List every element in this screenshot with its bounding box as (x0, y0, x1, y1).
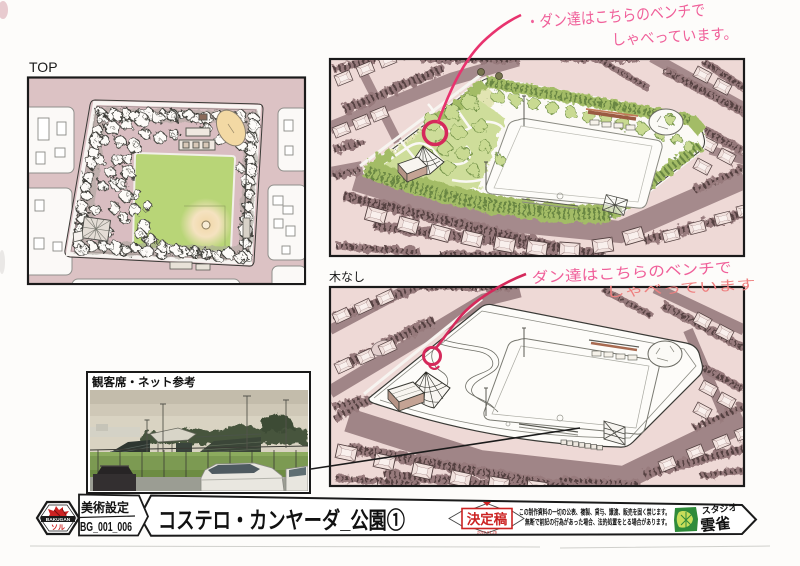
svg-text:木なし: 木なし (329, 270, 365, 284)
svg-text:雲雀: 雲雀 (700, 514, 732, 535)
svg-text:TOP: TOP (29, 59, 58, 75)
svg-text:2010.01.26: 2010.01.26 (477, 530, 498, 535)
svg-text:美術設定: 美術設定 (81, 500, 129, 515)
svg-text:観客席・ネット参考: 観客席・ネット参考 (92, 375, 196, 389)
svg-text:決定稿: 決定稿 (467, 511, 508, 527)
svg-text:ソル: ソル (51, 524, 65, 532)
svg-text:BAKUGAN: BAKUGAN (46, 517, 71, 523)
svg-text:BG_001_006: BG_001_006 (80, 520, 132, 534)
svg-text:コステロ・カンヤーダ_公園①: コステロ・カンヤーダ_公園① (158, 507, 405, 533)
svg-text:この制作資料の一切の公表、複製、貸与、譲渡、販売を固く禁じま: この制作資料の一切の公表、複製、貸与、譲渡、販売を固く禁じます。 (519, 508, 670, 517)
svg-text:無断で前記の行為があった場合、法的処置をとる場合があります。: 無断で前記の行為があった場合、法的処置をとる場合があります。 (524, 518, 670, 527)
